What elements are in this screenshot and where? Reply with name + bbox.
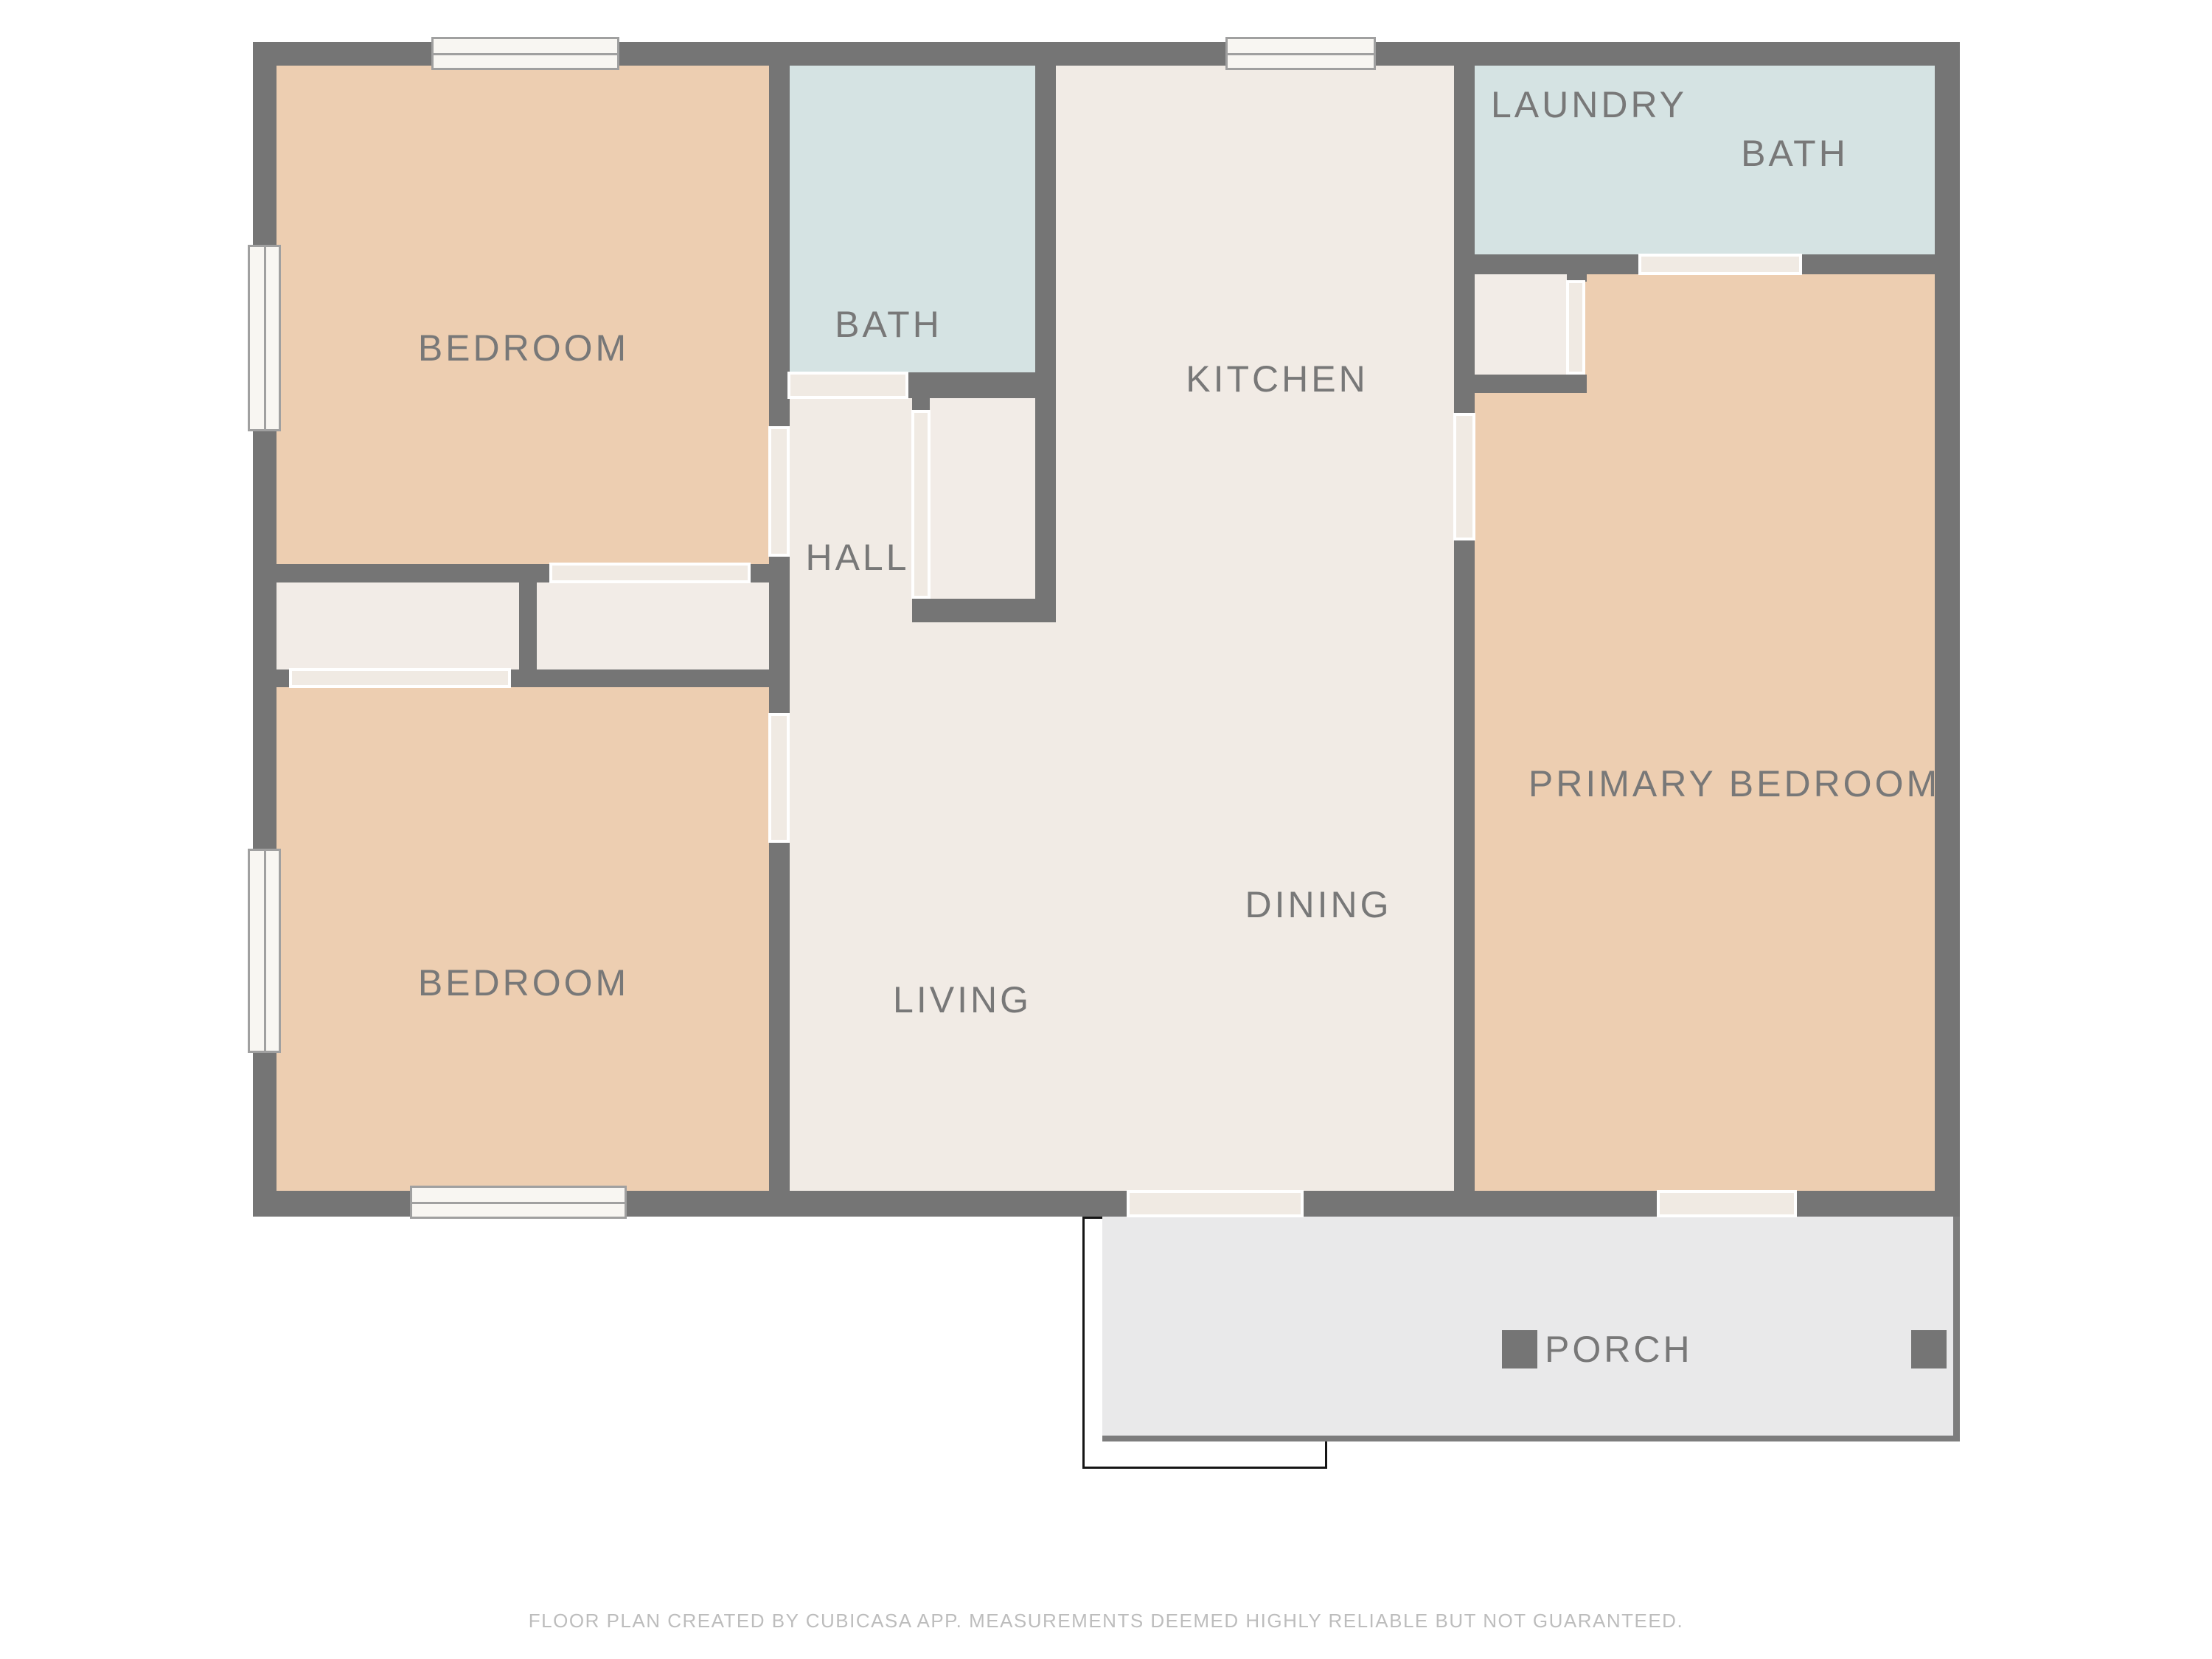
door-laundry — [1638, 254, 1802, 275]
wall-bath-bottom-left — [769, 372, 787, 398]
wall-closet-band-top-right — [751, 564, 790, 582]
porch-deck — [1102, 1217, 1960, 1441]
label-bedroom-top: BEDROOM — [418, 327, 629, 369]
door-bath-main — [787, 372, 908, 399]
room-bedroom-bottom — [276, 687, 769, 1191]
door-closet-primary — [1566, 280, 1585, 375]
label-dining: DINING — [1245, 883, 1392, 926]
window-bedroom-top-left — [248, 245, 281, 431]
door-primary-porch — [1657, 1190, 1797, 1217]
wall-kitchen-right-upper — [1454, 42, 1475, 413]
closet-left — [279, 582, 521, 669]
wall-bath-bottom-right — [908, 372, 1056, 398]
window-bedroom-bottom — [410, 1186, 627, 1219]
label-kitchen: KITCHEN — [1186, 358, 1368, 400]
door-primary-bedroom — [1453, 413, 1475, 540]
closet-primary — [1475, 273, 1567, 375]
label-bedroom-bottom: BEDROOM — [418, 961, 629, 1004]
wall-hall-closet-bottom — [912, 599, 1056, 622]
door-closet-hall — [911, 410, 931, 599]
wall-laundry-bottom-right — [1802, 254, 1960, 274]
label-laundry: LAUNDRY — [1491, 83, 1687, 126]
window-bedroom-bottom-left — [248, 849, 281, 1053]
label-bath-laundry: BATH — [1741, 132, 1848, 175]
door-closet-right — [549, 563, 751, 583]
label-hall: HALL — [805, 536, 909, 579]
window-kitchen — [1225, 37, 1376, 70]
room-primary-bedroom — [1475, 273, 1935, 1191]
wall-kitchen-right-lower — [1454, 540, 1475, 1191]
wall-bath-kitchen-vertical — [1035, 42, 1056, 622]
porch-post-icon-left — [1502, 1330, 1537, 1368]
label-living: LIVING — [893, 978, 1032, 1021]
closet-hall — [930, 398, 1035, 599]
wall-closet-band-bottom-right — [511, 669, 790, 687]
porch-post-icon-right — [1911, 1330, 1947, 1368]
door-living-porch — [1127, 1190, 1304, 1217]
wall-outer-right — [1935, 42, 1960, 1217]
floor-plan-canvas: BEDROOM BATH KITCHEN LAUNDRY BATH HALL P… — [0, 0, 2212, 1659]
label-primary-bedroom: PRIMARY BEDROOM — [1528, 762, 1940, 805]
wall-closet-band-top-left — [276, 564, 549, 582]
wall-laundry-bottom-left — [1454, 254, 1638, 274]
door-bedroom-top — [768, 426, 790, 557]
door-closet-left — [289, 668, 511, 688]
footer-disclaimer: FLOOR PLAN CREATED BY CUBICASA APP. MEAS… — [0, 1610, 2212, 1632]
window-bedroom-top — [431, 37, 619, 70]
label-porch: PORCH — [1545, 1328, 1693, 1371]
closet-right — [537, 582, 769, 669]
room-bedroom-top — [276, 66, 769, 564]
label-bath-main: BATH — [835, 303, 942, 346]
wall-hall-closet-stub — [912, 398, 930, 410]
wall-closet-middle — [519, 582, 537, 669]
wall-closet-band-bottom-left — [276, 669, 289, 687]
wall-primary-closet-bottom — [1454, 375, 1587, 393]
door-bedroom-bottom — [768, 713, 790, 843]
wall-hall-vertical-lower — [769, 843, 790, 1191]
porch-label-row: PORCH — [1502, 1330, 1693, 1368]
